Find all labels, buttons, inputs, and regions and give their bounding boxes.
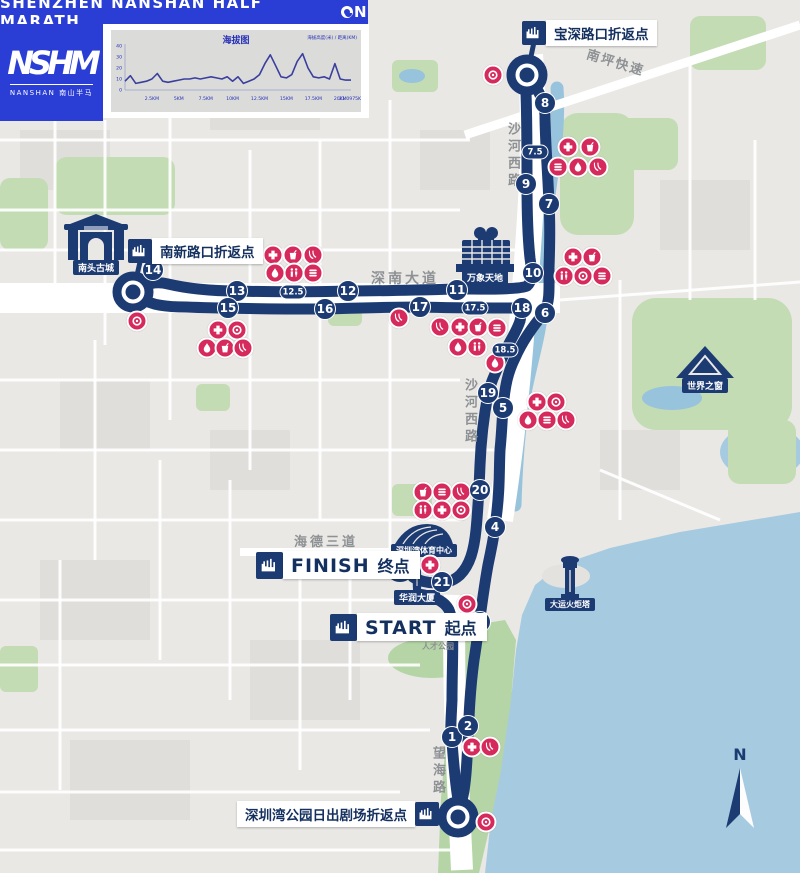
event-logo: NSHM NANSHAN 南山半马 (0, 24, 103, 121)
nshm-badge (415, 802, 439, 826)
km-marker-11: 11 (446, 279, 468, 301)
medical-station-icon (558, 137, 579, 158)
km-marker-6: 6 (534, 302, 556, 324)
marathon-route-map: 南头古城 万象天地 世界之窗 深圳湾体育中心 (0, 0, 800, 873)
finish-label: FINISH 终点 (256, 551, 420, 579)
km-marker-16: 16 (314, 298, 336, 320)
water-station-icon (448, 337, 469, 358)
svg-text:12.5KM: 12.5KM (251, 96, 268, 102)
km-marker-8: 8 (534, 92, 556, 114)
banana-station-icon (389, 308, 410, 329)
banana-station-icon (480, 737, 501, 758)
km-marker-7: 7 (538, 193, 560, 215)
km-marker-21: 21 (431, 571, 453, 593)
photo-station-icon (483, 65, 504, 86)
svg-text:0: 0 (119, 88, 122, 94)
road-label: 深南大道 (371, 268, 439, 288)
km-marker-17.5: 17.5 (462, 301, 489, 316)
banana-station-icon (233, 338, 254, 359)
nanxin-turnaround-text: 南新路口折返点 (152, 238, 263, 264)
food-station-icon (548, 157, 569, 178)
svg-text:10: 10 (116, 77, 122, 83)
km-marker-12: 12 (337, 280, 359, 302)
nshm-badge (256, 552, 283, 579)
logo-acronym: NSHM (7, 47, 95, 79)
sunrise-turnaround-text: 深圳湾公园日出剧场折返点 (237, 801, 415, 827)
road-label: 望海路 (428, 746, 447, 797)
svg-text:15KM: 15KM (280, 96, 293, 102)
road-label: 沙河西路 (460, 378, 479, 446)
event-title-banner: SHENZHEN NANSHAN HALF MARATHN (0, 0, 368, 24)
svg-text:7.5KM: 7.5KM (199, 96, 213, 102)
km-marker-9: 9 (515, 173, 537, 195)
km-marker-15: 15 (217, 297, 239, 319)
km-marker-17: 17 (409, 296, 431, 318)
water-station-icon (518, 410, 539, 431)
svg-text:10KM: 10KM (226, 96, 239, 102)
km-marker-4: 4 (484, 516, 506, 538)
road-label: 海德三道 (294, 531, 358, 550)
km-marker-18: 18 (511, 297, 533, 319)
toilet-station-icon (413, 500, 434, 521)
finish-word: FINISH (291, 555, 370, 577)
elevation-chart-note: 海拔高度(米) / 距离(KM) (307, 35, 357, 41)
banana-station-icon (556, 410, 577, 431)
toilet-station-icon (554, 266, 575, 287)
photo-station-icon (127, 311, 148, 332)
nshm-badge (128, 239, 152, 263)
svg-text:17.5KM: 17.5KM (305, 96, 322, 102)
photo-station-icon (476, 812, 497, 833)
svg-text:21.0975KM: 21.0975KM (339, 96, 361, 102)
toilet-station-icon (467, 337, 488, 358)
km-marker-19: 19 (477, 382, 499, 404)
food-station-icon (487, 318, 508, 339)
drink-station-icon (580, 137, 601, 158)
km-marker-20: 20 (469, 479, 491, 501)
start-word: START (365, 617, 437, 639)
medical-station-icon (563, 247, 584, 268)
map-overlay: 12345677.58910111212.5131415161717.51818… (0, 0, 800, 873)
baoshen-turnaround-text: 宝深路口折返点 (546, 20, 657, 46)
food-station-icon (592, 266, 613, 287)
drink-station-icon (468, 317, 489, 338)
km-marker-2: 2 (457, 715, 479, 737)
water-station-icon (568, 157, 589, 178)
svg-text:2.5KM: 2.5KM (145, 96, 159, 102)
km-marker-7.5: 7.5 (522, 145, 549, 160)
finish-cn: 终点 (378, 553, 410, 577)
logo-subtitle: NANSHAN 南山半马 (10, 84, 93, 98)
banana-station-icon (430, 317, 451, 338)
km-marker-10: 10 (522, 262, 544, 284)
stylized-o-icon (341, 6, 353, 18)
water-station-icon (265, 263, 286, 284)
photo-station-icon (573, 266, 594, 287)
start-label: START 起点 (330, 613, 487, 641)
turnaround-label-baoshen: 宝深路口折返点 (522, 20, 657, 46)
km-marker-12.5: 12.5 (280, 285, 307, 300)
nshm-badge (330, 614, 357, 641)
poi-label: 人才公园 (422, 641, 454, 652)
drink-station-icon (582, 247, 603, 268)
elevation-chart-panel: 海拔图 海拔高度(米) / 距离(KM) 2.5KM5KM7.5KM10KM12… (103, 24, 369, 118)
road-label: 南坪快速 (585, 44, 648, 80)
nshm-badge (522, 21, 546, 45)
toilet-station-icon (284, 263, 305, 284)
svg-text:5KM: 5KM (174, 96, 184, 102)
food-station-icon (537, 410, 558, 431)
turnaround-label-nanxin: 南新路口折返点 (128, 238, 263, 264)
medical-station-icon (432, 500, 453, 521)
km-marker-18.5: 18.5 (492, 343, 519, 358)
food-station-icon (303, 263, 324, 284)
svg-text:30: 30 (116, 55, 122, 61)
start-cn: 起点 (445, 615, 477, 639)
photo-station-icon (451, 500, 472, 521)
svg-text:20: 20 (116, 66, 122, 72)
event-title-right: N (354, 3, 368, 21)
turnaround-label-sunrise-theater: 深圳湾公园日出剧场折返点 (237, 801, 439, 827)
banana-station-icon (588, 157, 609, 178)
